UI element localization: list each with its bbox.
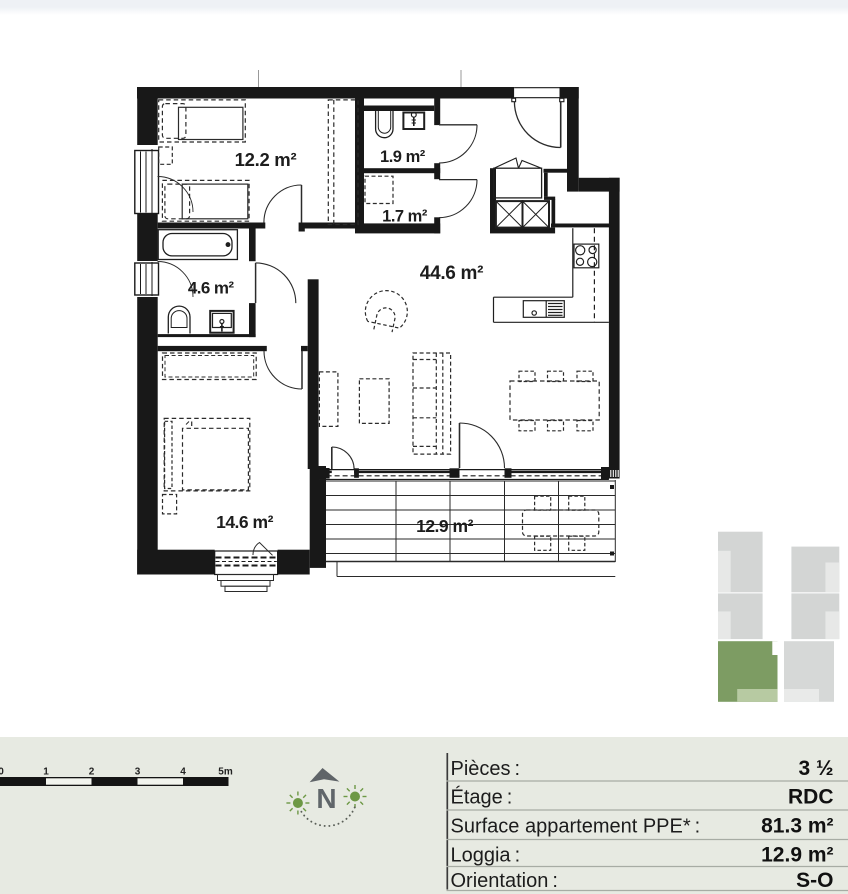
svg-text:0: 0	[0, 767, 4, 778]
svg-text:1.7 m²: 1.7 m²	[382, 208, 428, 226]
svg-text:2: 2	[89, 767, 95, 778]
svg-text:14.6 m²: 14.6 m²	[216, 512, 273, 532]
svg-text:44.6 m²: 44.6 m²	[420, 263, 483, 284]
svg-text:4.6 m²: 4.6 m²	[188, 279, 234, 298]
svg-text:3: 3	[135, 767, 141, 778]
svg-text:12.9 m²: 12.9 m²	[416, 516, 473, 536]
svg-text:12.9 m²: 12.9 m²	[761, 843, 833, 866]
svg-text:Orientation :: Orientation :	[451, 870, 558, 892]
svg-text:RDC: RDC	[788, 786, 834, 809]
svg-text:N: N	[316, 783, 336, 814]
svg-text:1.9 m²: 1.9 m²	[380, 148, 426, 166]
svg-text:12.2 m²: 12.2 m²	[235, 149, 297, 170]
svg-text:1: 1	[43, 767, 49, 778]
svg-text:3 ½: 3 ½	[798, 757, 833, 780]
svg-text:4: 4	[180, 767, 186, 778]
svg-text:81.3 m²: 81.3 m²	[761, 815, 833, 838]
svg-text:Étage :: Étage :	[451, 786, 513, 809]
svg-text:5m: 5m	[218, 767, 233, 778]
svg-text:Loggia :: Loggia :	[451, 844, 521, 866]
svg-text:S-O: S-O	[796, 869, 833, 892]
svg-text:Pièces :: Pièces :	[451, 758, 521, 780]
svg-text:Surface appartement PPE* :: Surface appartement PPE* :	[451, 816, 701, 838]
